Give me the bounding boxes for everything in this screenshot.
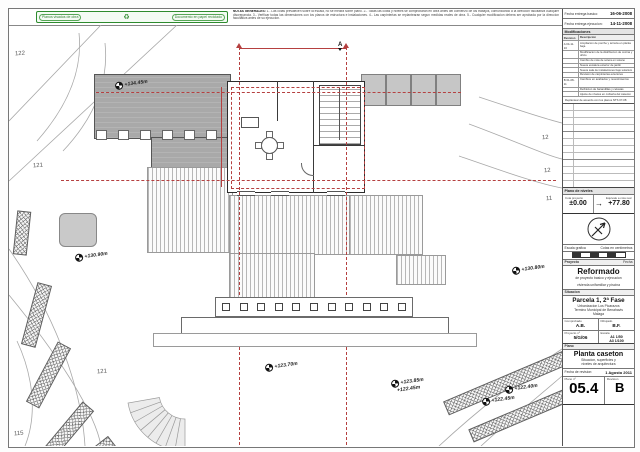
contour-label: 115 [14, 431, 24, 438]
skylight [206, 130, 217, 140]
skylight [162, 130, 173, 140]
comprobado-cell: ComprobadoA.B. [563, 319, 599, 330]
cota-proyecto: Cota proyecto ±0.00 [563, 195, 594, 213]
level-marker-icon [75, 253, 84, 262]
escala-grafica-label: Escala grafica [563, 245, 587, 250]
column-symbol [363, 303, 371, 311]
dibujado-cell: DibujadoB.F. [599, 319, 634, 330]
fecha-ejecucion-value: 14-11-2008 [610, 21, 634, 26]
column-symbol [240, 303, 248, 311]
skylight [184, 130, 195, 140]
contour-label: 121 [97, 369, 107, 376]
axis-line-horizontal-1 [61, 180, 556, 181]
situacion-label: Situacion [563, 290, 581, 295]
fecha-revision-label: Fecha de revision: [563, 370, 594, 375]
notes-text: 1.- Las cotas prevalecen sobre la escala… [233, 10, 559, 20]
drawing-sheet: Planos visados de obra ♻ Documento en pa… [8, 8, 635, 448]
dimension-line [239, 48, 346, 49]
column-symbol [292, 303, 300, 311]
deck-right [349, 195, 423, 255]
mod-col-descripcion: Descripcion [579, 35, 634, 40]
fecha-basico-label: Fecha entrega basico: [563, 11, 600, 16]
axis-line-vertical-1 [239, 47, 240, 446]
situacion-title: Parcela 1, 2ª Fase [563, 297, 634, 304]
axis-arrow-icon [236, 43, 242, 48]
north-arrow-panel [563, 214, 634, 245]
skylight [140, 130, 151, 140]
title-block: Fecha entrega basico:16-06-2008 Fecha en… [562, 9, 634, 446]
proyecto-subtitle: de proyecto basico y ejecucion [563, 276, 634, 280]
general-notes: NOTAS GENERALES: 1.- Las cotas prevalece… [233, 10, 559, 24]
fecha-label: Fecha [622, 260, 634, 265]
visa-badge-right: Documento en papel reciclado [172, 14, 225, 21]
escala-cell: EscalaA1 1/50A3 1/100 [599, 331, 634, 343]
plano-num-cell: Plano nº 05.4 [563, 377, 605, 404]
column-symbol [380, 303, 388, 311]
proyecto-num-cell: Proyecto nº5/G/06 [563, 331, 599, 343]
visa-badge-left: Planos visados de obra [39, 14, 81, 21]
skylight [118, 130, 129, 140]
site-plan: A +134.45m +130.90m +130.80m +123.70m +1… [9, 25, 562, 446]
contour-label: 122 [15, 51, 25, 58]
axis-line-vertical-2 [346, 47, 347, 446]
column-symbol [345, 303, 353, 311]
recycle-icon: ♻ [123, 14, 129, 21]
situacion-line3: Malaga [563, 312, 634, 316]
roof-plane-left-ext [151, 137, 231, 169]
column-symbol [310, 303, 318, 311]
contour-label: 11 [546, 196, 553, 202]
proyecto-title: Reformado [563, 267, 634, 276]
plano-sub2: niveles de arquitectura [563, 362, 634, 366]
axis-line-horizontal-2 [96, 92, 461, 93]
north-arrow-icon [586, 216, 612, 242]
terrace-colonnade [215, 297, 413, 317]
fecha-revision-value: 1 Agosto 2011 [605, 370, 634, 375]
cota-real: Equivale a cota real +77.80 [604, 195, 634, 213]
terrace-step-2 [153, 333, 477, 347]
contour-label: 12 [544, 168, 551, 174]
dimension-line [221, 87, 222, 187]
drawing-number: 05.4 [569, 380, 598, 397]
skylight [96, 130, 107, 140]
fecha-basico-value: 16-06-2008 [610, 11, 634, 16]
section-marker: A [338, 42, 342, 51]
arrow-right-icon: → [594, 195, 604, 213]
mod-col-revision: Revision [563, 35, 579, 40]
visa-stamp: Planos visados de obra ♻ Documento en pa… [36, 11, 228, 23]
cotas-cm-label: Cotas en centimetros [599, 245, 634, 250]
window-symbol [271, 191, 289, 196]
deck-right-small [396, 255, 446, 285]
mod-note: Replantear de acuerdo con los planos NTS… [563, 97, 634, 104]
column-symbol [398, 303, 406, 311]
drawing-page: Planos visados de obra ♻ Documento en pa… [0, 0, 640, 452]
level-marker-icon [482, 397, 491, 406]
contour-label: 12 [542, 135, 549, 141]
deck-center-upper [229, 195, 353, 255]
plano-title: Planta caseton [563, 351, 634, 358]
notes-strip: Planos visados de obra ♻ Documento en pa… [9, 9, 562, 26]
column-symbol [257, 303, 265, 311]
column-symbol [222, 303, 230, 311]
axis-arrow-icon [343, 43, 349, 48]
roof-panel-3 [411, 74, 436, 106]
column-symbol [328, 303, 336, 311]
level-marker-icon [115, 81, 124, 90]
revision-cell: Revision B [605, 377, 634, 404]
fan-steps [128, 398, 185, 447]
level-marker-icon [512, 266, 521, 275]
graphic-scale-bar [572, 252, 626, 258]
fecha-ejecucion-label: Fecha entrega ejecucion: [563, 21, 604, 26]
level-marker-icon [265, 363, 274, 372]
contour-label: 121 [33, 163, 43, 170]
landscape-pad [59, 213, 97, 247]
column-symbol [275, 303, 283, 311]
revision-letter: B [615, 380, 624, 395]
proyecto-objeto: vivienda unifamiliar y piscina [563, 283, 634, 287]
proyecto-label: Proyecto [563, 260, 581, 265]
plano-label: Plano [563, 344, 575, 349]
red-axis-rectangle [231, 87, 365, 189]
window-symbol [327, 191, 345, 196]
roof-panel-4 [436, 74, 461, 106]
roof-panel-2 [386, 74, 411, 106]
